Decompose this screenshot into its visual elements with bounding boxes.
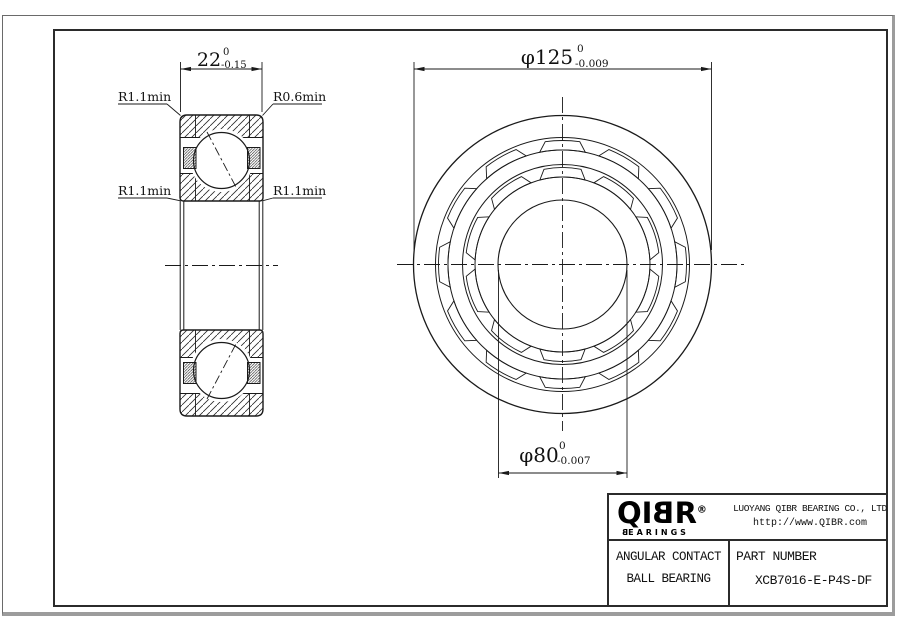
company-info: LUOYANG QIBR BEARING CO., LTD http://www… <box>730 495 890 539</box>
company-name: LUOYANG QIBR BEARING CO., LTD <box>730 503 890 514</box>
logo-subtitle-mirrored-b: B <box>619 528 628 537</box>
part-number-value: XCB7016-E-P4S-DF <box>755 573 886 588</box>
product-type-line1: ANGULAR CONTACT <box>609 550 728 564</box>
company-logo: QIBR® BEARINGS <box>617 500 729 537</box>
drawing-sheet: { "dimensions": { "width": { "value": "2… <box>0 0 900 636</box>
title-block-detail-row: ANGULAR CONTACT BALL BEARING PART NUMBER… <box>609 539 886 605</box>
logo-text-mirrored-b: B <box>652 500 674 527</box>
part-number-cell: PART NUMBER XCB7016-E-P4S-DF <box>730 539 886 605</box>
company-website: http://www.QIBR.com <box>730 518 890 529</box>
product-type-line2: BALL BEARING <box>609 572 728 586</box>
part-number-label: PART NUMBER <box>736 549 886 564</box>
title-block: QIBR® BEARINGS LUOYANG QIBR BEARING CO.,… <box>607 493 888 607</box>
logo-text: R <box>675 496 697 530</box>
product-type-cell: ANGULAR CONTACT BALL BEARING <box>609 539 730 605</box>
title-block-header-row: QIBR® BEARINGS LUOYANG QIBR BEARING CO.,… <box>609 495 886 541</box>
logo-text: QI <box>617 496 652 530</box>
logo-wordmark: QIBR® <box>617 500 729 527</box>
registered-trademark-icon: ® <box>697 504 707 515</box>
